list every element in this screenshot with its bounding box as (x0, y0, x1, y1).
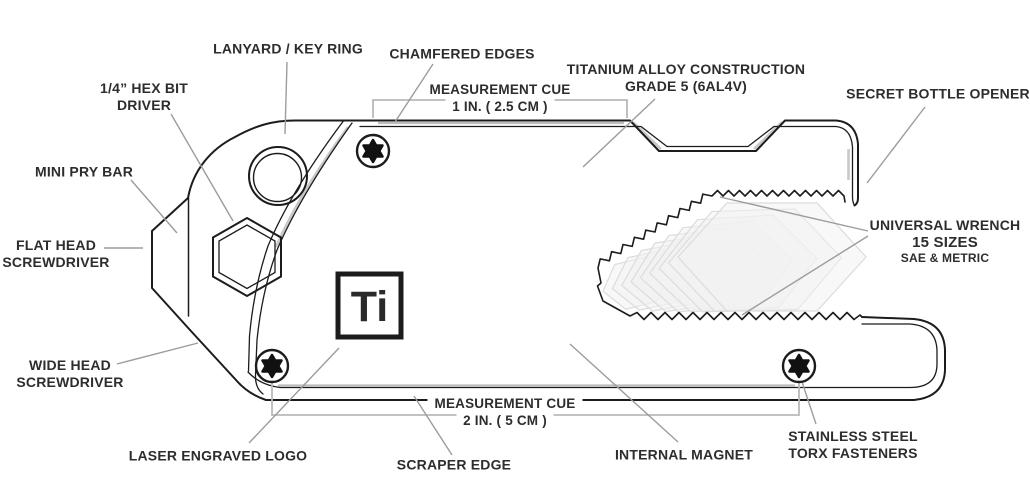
ti-logo-text: Ti (351, 283, 388, 331)
callout-flat-head-screwdriver: FLAT HEAD SCREWDRIVER (2, 237, 109, 271)
leader-torx (801, 379, 816, 424)
torx-screw-bottom-left (256, 350, 288, 382)
callout-measurement-cue-bottom: MEASUREMENT CUE 2 IN. ( 5 CM ) (427, 395, 582, 429)
callout-scraper-edge: SCRAPER EDGE (397, 457, 511, 474)
callout-torx-fasteners: STAINLESS STEEL TORX FASTENERS (788, 428, 918, 462)
callout-lanyard: LANYARD / KEY RING (213, 41, 363, 58)
callout-laser-engraved-logo: LASER ENGRAVED LOGO (129, 448, 308, 465)
torx-screw-top (357, 135, 389, 167)
leader-lanyard (285, 62, 287, 134)
callout-internal-magnet: INTERNAL MAGNET (615, 447, 753, 464)
ti-logo-square: Ti (338, 274, 401, 337)
callout-universal-wrench: UNIVERSAL WRENCH 15 SIZES SAE & METRIC (870, 217, 1021, 265)
callout-titanium-alloy: TITANIUM ALLOY CONSTRUCTION GRADE 5 (6AL… (567, 61, 805, 95)
callout-chamfered-edges: CHAMFERED EDGES (389, 46, 534, 63)
callout-measurement-cue-top: MEASUREMENT CUE 1 IN. ( 2.5 CM ) (422, 81, 577, 115)
universal-wrench-hexagons (597, 203, 866, 316)
callout-secret-bottle-opener: SECRET BOTTLE OPENER (846, 86, 1030, 103)
hex-bit-socket (213, 218, 281, 296)
leader-mini-pry (131, 180, 177, 233)
leader-bottle-opener (867, 107, 925, 183)
lanyard-hole (249, 147, 307, 205)
callout-mini-pry-bar: MINI PRY BAR (35, 164, 133, 181)
callout-hex-bit-driver: 1/4” HEX BIT DRIVER (100, 80, 188, 114)
torx-screw-bottom-right (783, 350, 815, 382)
multitool-feature-diagram: Ti LANYARD / KEY RING 1/4” HEX BIT DRIVE… (0, 0, 1030, 499)
leader-magnet (570, 344, 678, 442)
callout-wide-head-screwdriver: WIDE HEAD SCREWDRIVER (16, 357, 123, 391)
leader-wide-head (117, 343, 198, 364)
